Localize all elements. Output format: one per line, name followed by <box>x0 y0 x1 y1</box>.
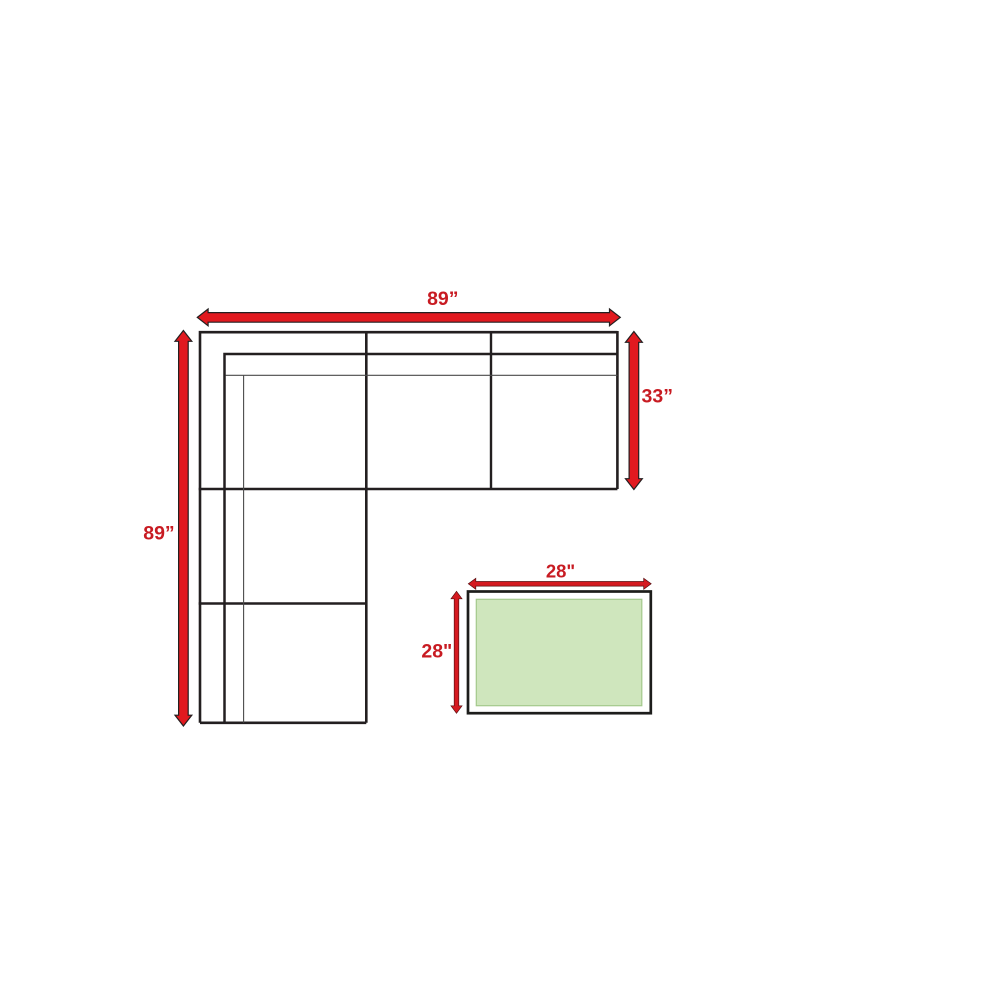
svg-text:33”: 33” <box>642 386 673 408</box>
svg-text:89”: 89” <box>427 288 458 310</box>
svg-text:28": 28" <box>421 641 452 663</box>
svg-text:89”: 89” <box>143 523 174 545</box>
svg-text:28": 28" <box>546 561 575 582</box>
